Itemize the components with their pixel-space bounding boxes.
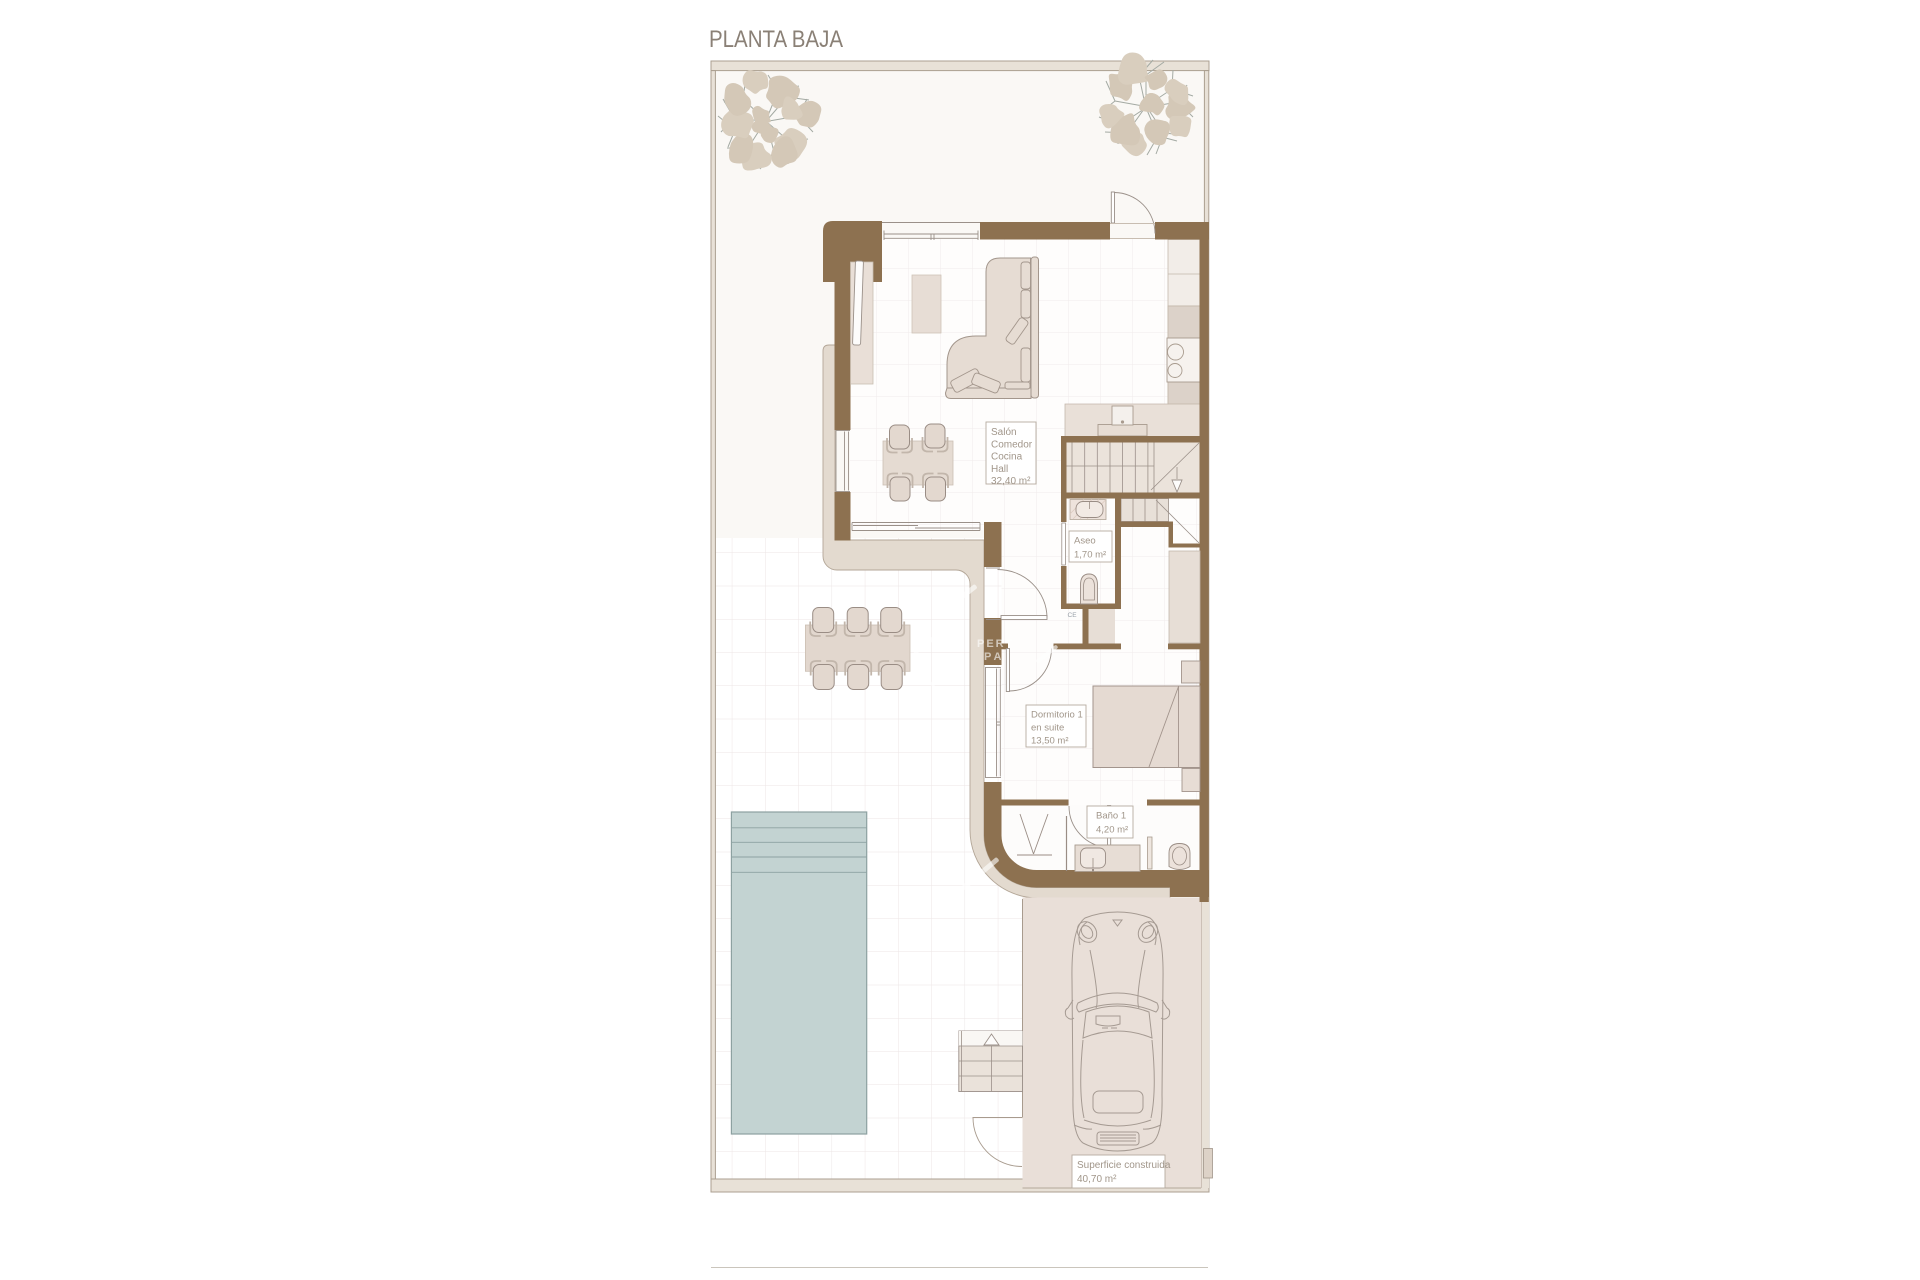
svg-text:Aseo: Aseo	[1074, 536, 1096, 547]
svg-text:PA: PA	[984, 651, 1004, 663]
svg-text:Dormitorio 1: Dormitorio 1	[1031, 710, 1083, 721]
svg-text:4,20 m²: 4,20 m²	[1096, 825, 1128, 836]
svg-text:PLANTA BAJA: PLANTA BAJA	[709, 26, 844, 53]
svg-text:13,50 m²: 13,50 m²	[1031, 736, 1069, 747]
svg-text:Baño 1: Baño 1	[1096, 811, 1126, 822]
svg-text:Superficie construida: Superficie construida	[1077, 1160, 1171, 1171]
svg-text:CE: CE	[1068, 612, 1078, 619]
svg-text:1,70 m²: 1,70 m²	[1074, 550, 1106, 561]
svg-text:PERT: PERT	[977, 638, 1014, 650]
svg-text:Salón: Salón	[991, 427, 1017, 438]
svg-text:40,70 m²: 40,70 m²	[1077, 1174, 1117, 1185]
svg-text:Comedor: Comedor	[991, 439, 1033, 450]
svg-text:Cocina: Cocina	[991, 452, 1023, 463]
svg-text:Hall: Hall	[991, 464, 1008, 475]
svg-text:en suite: en suite	[1031, 723, 1064, 734]
svg-text:32,40 m²: 32,40 m²	[991, 476, 1031, 487]
